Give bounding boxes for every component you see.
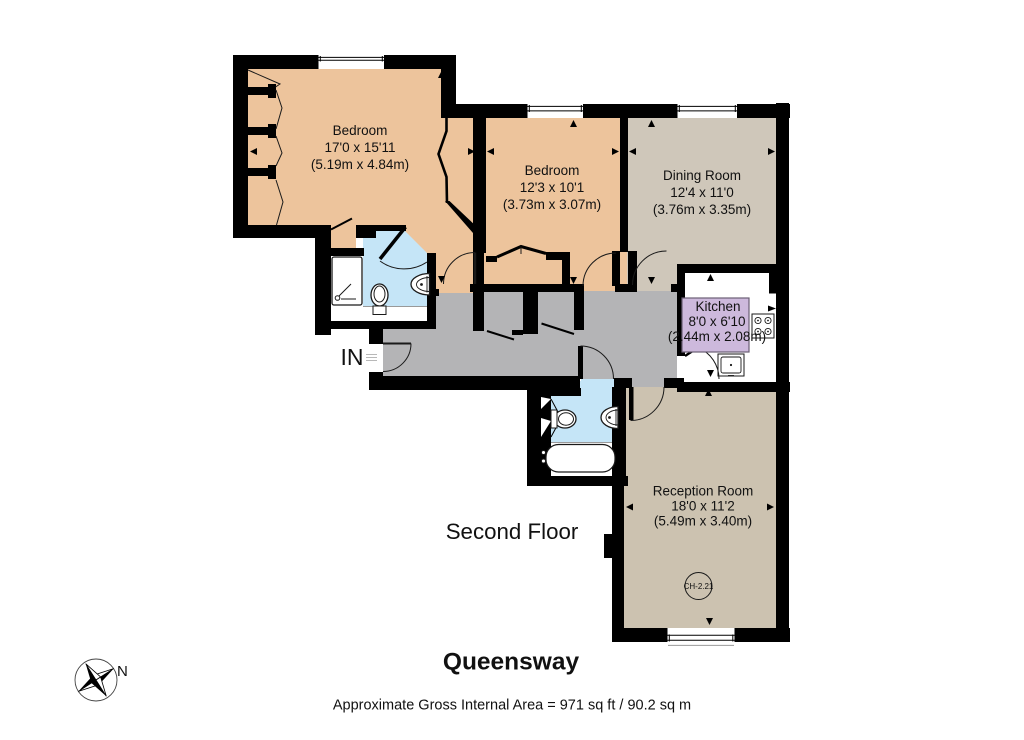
svg-text:12'4 x 11'0: 12'4 x 11'0 (670, 185, 733, 200)
svg-text:Bedroom: Bedroom (525, 163, 580, 178)
svg-text:Approximate Gross Internal Are: Approximate Gross Internal Area = 971 sq… (333, 698, 691, 714)
svg-text:Bedroom: Bedroom (333, 123, 388, 138)
svg-text:12'3 x 10'1: 12'3 x 10'1 (520, 180, 584, 195)
svg-text:(2.44m x 2.08m): (2.44m x 2.08m) (668, 329, 766, 344)
svg-text:Kitchen: Kitchen (695, 299, 740, 314)
svg-text:(3.73m x 3.07m): (3.73m x 3.07m) (503, 197, 601, 212)
svg-text:(3.76m x 3.35m): (3.76m x 3.35m) (653, 202, 751, 217)
svg-text:17'0 x 15'11: 17'0 x 15'11 (325, 140, 396, 155)
svg-text:8'0 x 6'10: 8'0 x 6'10 (689, 314, 746, 329)
svg-text:N: N (117, 663, 128, 680)
svg-text:Queensway: Queensway (443, 649, 580, 676)
svg-text:Second Floor: Second Floor (446, 519, 579, 544)
svg-text:CH-2.21: CH-2.21 (684, 582, 714, 591)
svg-text:Dining Room: Dining Room (663, 168, 741, 183)
svg-text:(5.49m x 3.40m): (5.49m x 3.40m) (654, 514, 752, 529)
svg-text:18'0 x 11'2: 18'0 x 11'2 (671, 499, 734, 514)
svg-text:(5.19m x 4.84m): (5.19m x 4.84m) (311, 157, 409, 172)
svg-text:Reception Room: Reception Room (653, 484, 754, 499)
svg-text:IN: IN (341, 344, 364, 370)
